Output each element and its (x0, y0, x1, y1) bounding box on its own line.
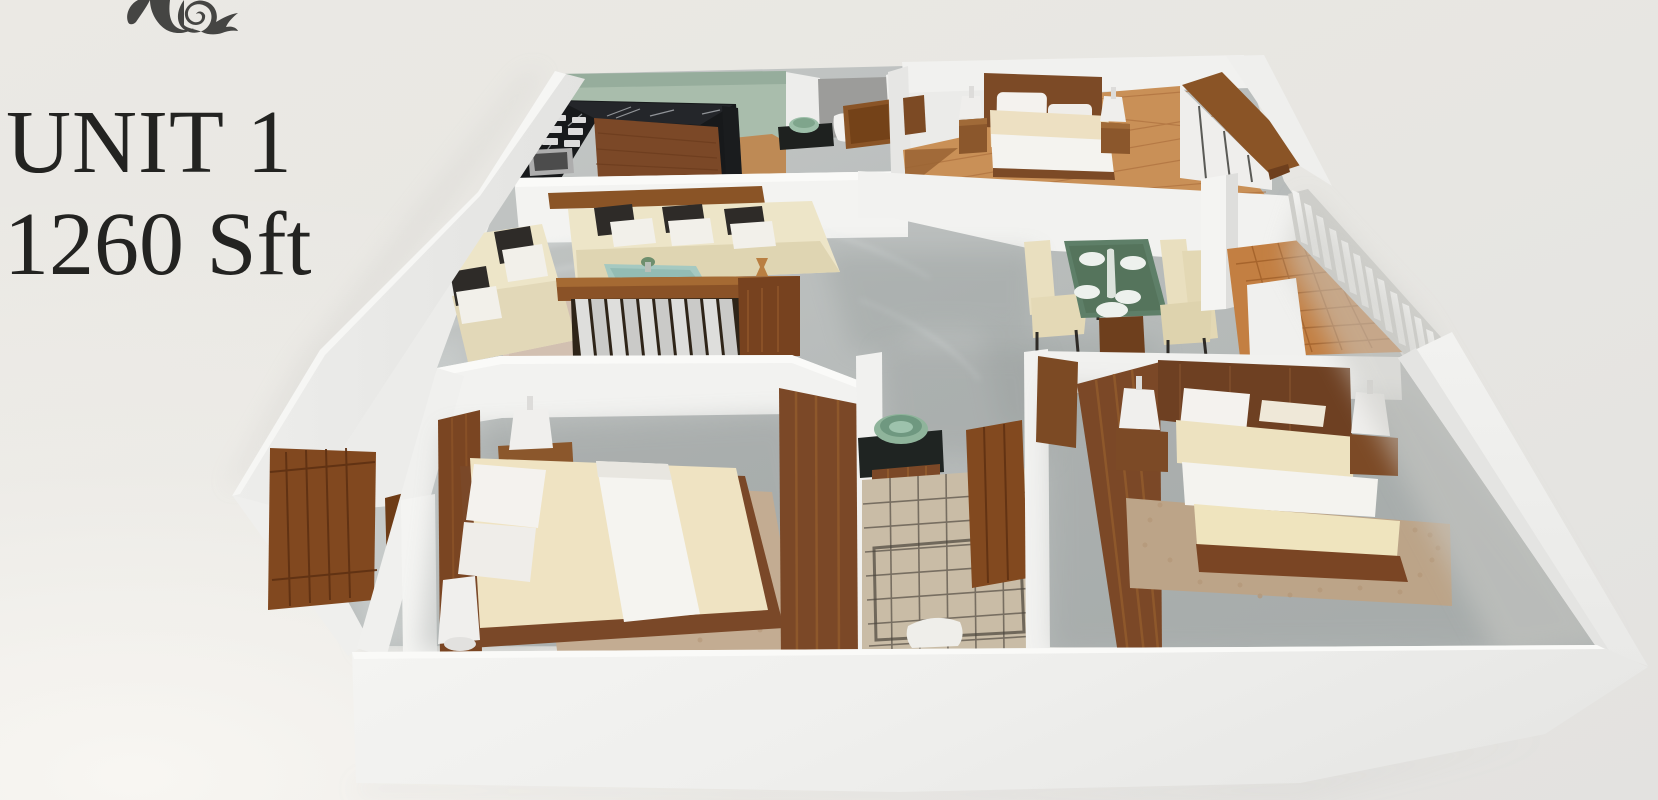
svg-text:UNIT 1: UNIT 1 (6, 93, 293, 192)
svg-text:1260 Sft: 1260 Sft (4, 195, 312, 294)
